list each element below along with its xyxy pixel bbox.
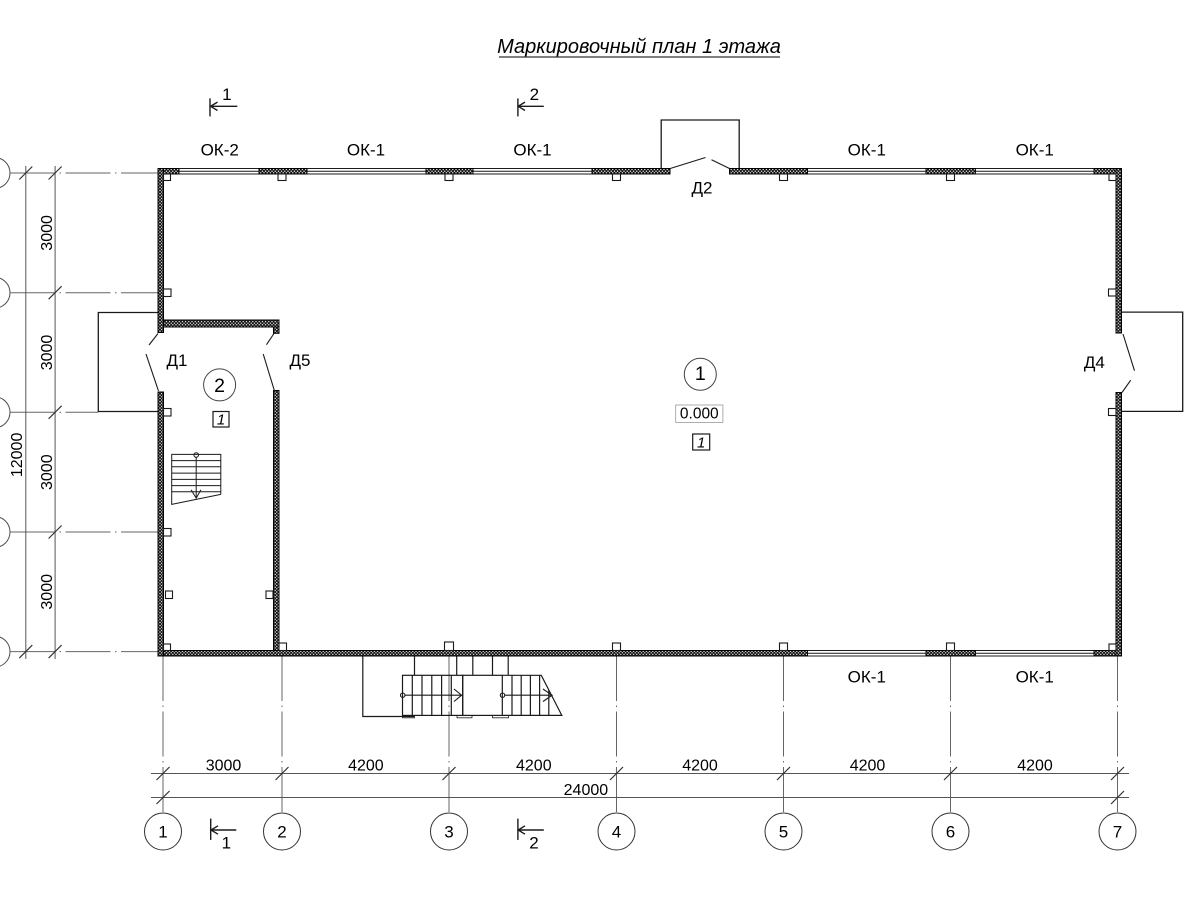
svg-text:7: 7 xyxy=(1113,823,1122,842)
svg-text:ОК-1: ОК-1 xyxy=(848,140,886,159)
svg-text:Д4: Д4 xyxy=(1084,353,1105,372)
svg-text:2: 2 xyxy=(214,375,225,397)
svg-text:2: 2 xyxy=(277,823,286,842)
svg-text:ОК-1: ОК-1 xyxy=(1016,140,1054,159)
svg-text:1: 1 xyxy=(697,434,705,451)
svg-text:ОК-1: ОК-1 xyxy=(513,140,551,159)
svg-text:0.000: 0.000 xyxy=(680,406,719,423)
svg-text:3000: 3000 xyxy=(39,335,56,371)
svg-text:Маркировочный план 1 этажа: Маркировочный план 1 этажа xyxy=(497,36,781,58)
svg-text:ОК-1: ОК-1 xyxy=(347,140,385,159)
svg-text:ОК-1: ОК-1 xyxy=(1016,668,1054,687)
svg-text:5: 5 xyxy=(779,823,788,842)
svg-text:1: 1 xyxy=(222,833,231,852)
svg-text:4200: 4200 xyxy=(516,758,552,775)
svg-text:ОК-2: ОК-2 xyxy=(201,140,239,159)
svg-text:3000: 3000 xyxy=(206,758,242,775)
svg-text:4200: 4200 xyxy=(850,758,886,775)
svg-text:4: 4 xyxy=(612,823,621,842)
svg-text:4200: 4200 xyxy=(1017,758,1053,775)
svg-text:1: 1 xyxy=(158,823,167,842)
svg-text:12000: 12000 xyxy=(9,433,26,478)
svg-text:Д2: Д2 xyxy=(692,179,713,198)
svg-text:Д5: Д5 xyxy=(290,351,311,370)
svg-text:4200: 4200 xyxy=(348,758,384,775)
svg-text:3000: 3000 xyxy=(39,574,56,610)
svg-text:1: 1 xyxy=(695,363,706,385)
svg-text:1: 1 xyxy=(217,411,225,428)
svg-text:6: 6 xyxy=(946,823,955,842)
svg-text:2: 2 xyxy=(529,833,538,852)
svg-text:ОК-1: ОК-1 xyxy=(848,668,886,687)
svg-text:24000: 24000 xyxy=(564,782,609,799)
svg-text:3: 3 xyxy=(444,823,453,842)
svg-text:3000: 3000 xyxy=(39,215,56,251)
svg-text:Д1: Д1 xyxy=(167,351,188,370)
svg-text:1: 1 xyxy=(222,85,231,104)
svg-text:2: 2 xyxy=(530,85,539,104)
svg-text:4200: 4200 xyxy=(682,758,718,775)
svg-text:3000: 3000 xyxy=(39,454,56,490)
